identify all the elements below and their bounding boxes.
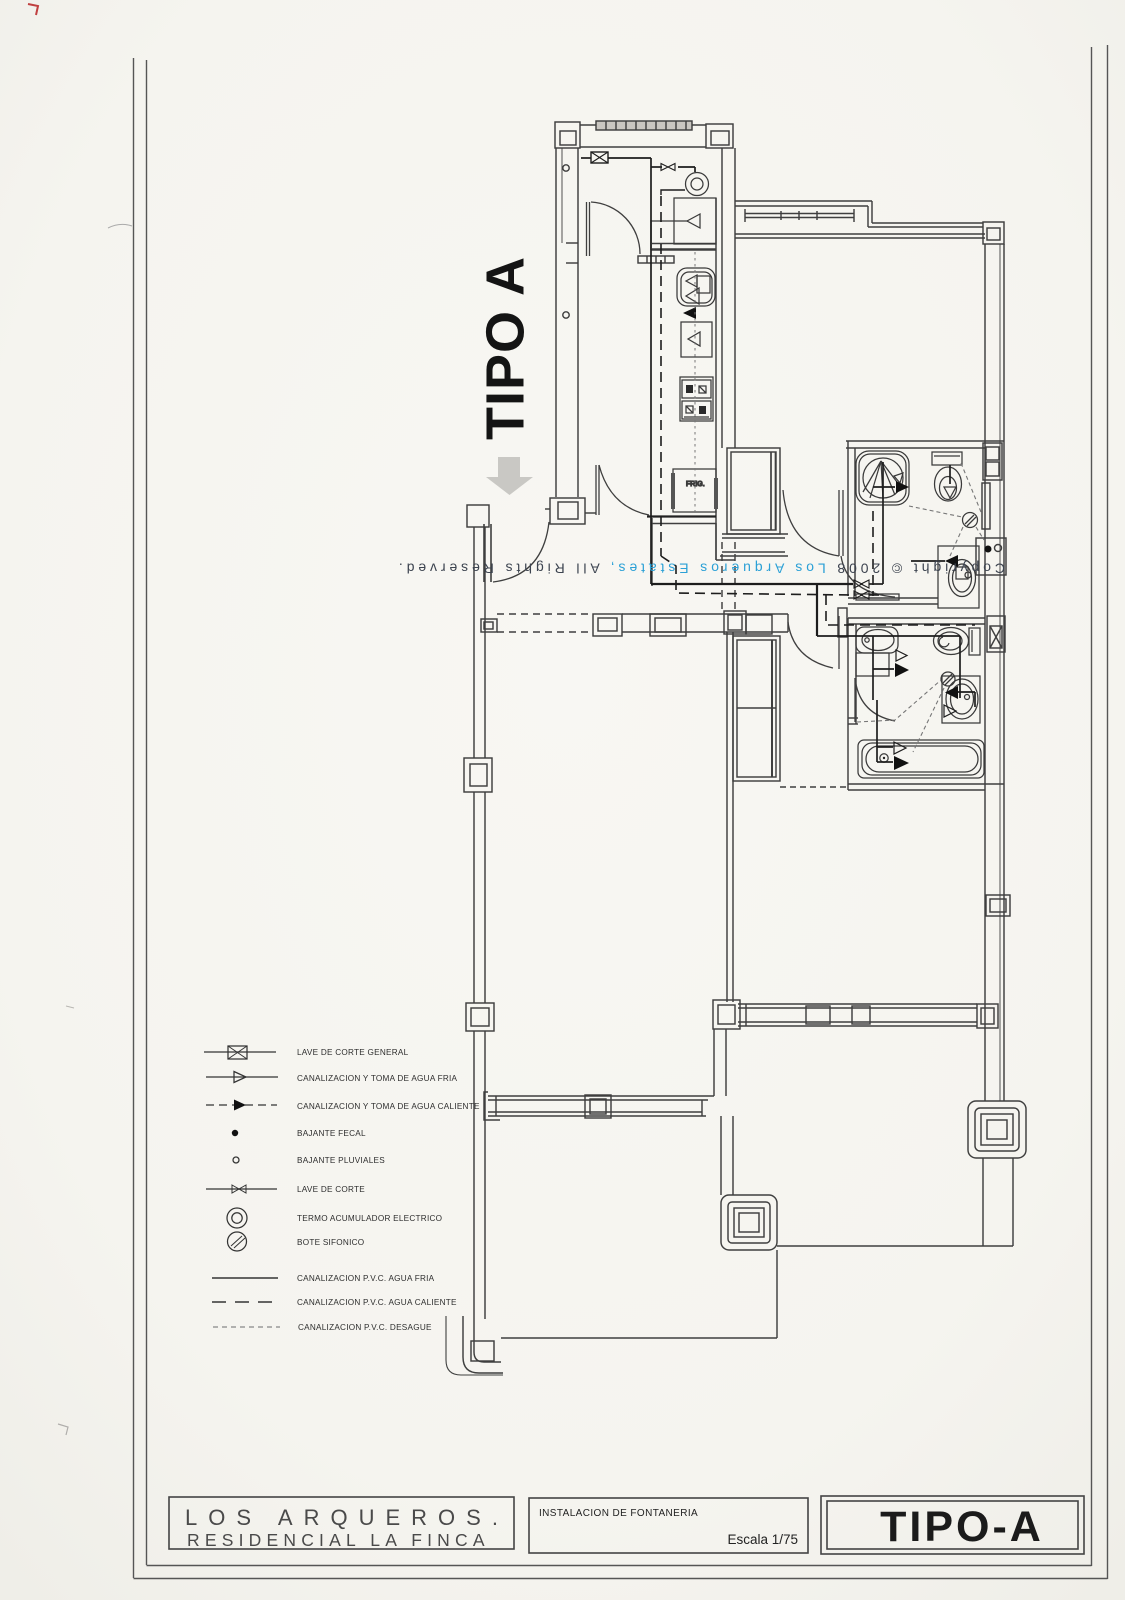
svg-text:CANALIZACION Y TOMA DE AGU: CANALIZACION Y TOMA DE AGUA CALIENTE — [297, 1102, 480, 1111]
svg-text:TIPO A: TIPO A — [475, 256, 535, 440]
svg-text:LAVE DE CORTE: LAVE DE CORTE — [297, 1185, 365, 1194]
svg-text:RESIDENCIAL LA FINCA: RESIDENCIAL LA FINCA — [187, 1530, 490, 1550]
svg-text:TIPO-A: TIPO-A — [880, 1503, 1044, 1551]
svg-text:BAJANTE PLUVIALES: BAJANTE PLUVIALES — [297, 1156, 385, 1165]
svg-text:INSTALACION DE FONTANERIA: INSTALACION DE FONTANERIA — [539, 1508, 698, 1519]
svg-text:LOS ARQUEROS.: LOS ARQUEROS. — [185, 1505, 509, 1530]
svg-text:Copyright © 2008 Los Arqueros: Copyright © 2008 Los Arqueros Estates, A… — [395, 561, 1005, 577]
svg-text:CANALIZACION P.V.C. AGUA CA: CANALIZACION P.V.C. AGUA CALIENTE — [297, 1298, 457, 1307]
svg-text:CANALIZACION P.V.C. DESAGUE: CANALIZACION P.V.C. DESAGUE — [298, 1323, 432, 1332]
svg-text:LAVE DE CORTE GENERAL: LAVE DE CORTE GENERAL — [297, 1048, 409, 1057]
svg-text:BAJANTE FECAL: BAJANTE FECAL — [297, 1129, 366, 1138]
svg-text:TERMO ACUMULADOR ELECTRICO: TERMO ACUMULADOR ELECTRICO — [297, 1214, 442, 1223]
svg-text:CANALIZACION Y TOMA DE AGU: CANALIZACION Y TOMA DE AGUA FRIA — [297, 1074, 458, 1083]
svg-text:CANALIZACION P.V.C. AGUA FR: CANALIZACION P.V.C. AGUA FRIA — [297, 1274, 435, 1283]
svg-text:BOTE SIFONICO: BOTE SIFONICO — [297, 1238, 364, 1247]
svg-text:Escala 1/75: Escala 1/75 — [727, 1532, 798, 1547]
